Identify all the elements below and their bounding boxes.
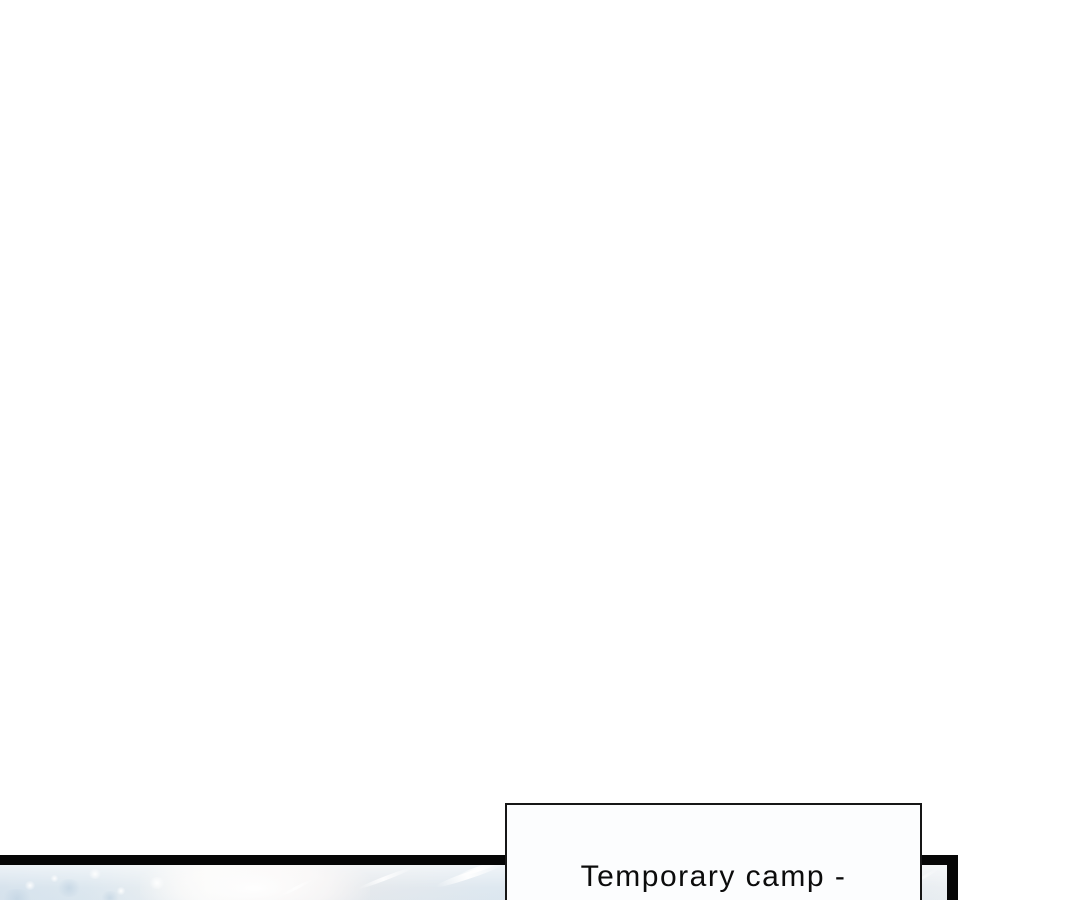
ice-patch bbox=[0, 889, 34, 900]
snow-fleck bbox=[24, 881, 36, 890]
snow-fleck bbox=[88, 869, 102, 879]
snow-fleck bbox=[148, 877, 166, 889]
ice-patch bbox=[56, 879, 82, 897]
comic-page: Temporary camp - bbox=[0, 0, 1080, 900]
caption-box: Temporary camp - bbox=[505, 803, 922, 900]
snow-fleck bbox=[116, 887, 126, 895]
caption-text: Temporary camp - bbox=[507, 859, 920, 894]
snow-glow bbox=[140, 865, 370, 900]
snow-fleck bbox=[50, 875, 59, 882]
